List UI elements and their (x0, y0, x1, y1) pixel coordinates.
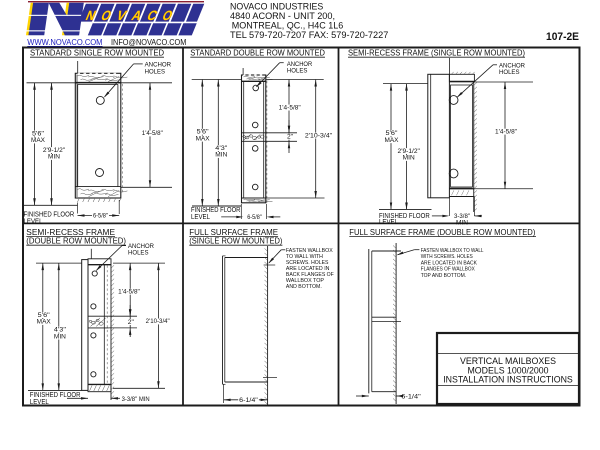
svg-text:MIN: MIN (48, 155, 60, 161)
svg-text:STANDARD DOUBLE ROW MOUNTED: STANDARD DOUBLE ROW MOUNTED (190, 49, 325, 58)
svg-text:TOP AND BOTTOM.: TOP AND BOTTOM. (421, 273, 467, 279)
svg-text:3-3/8": 3-3/8" (454, 214, 470, 220)
svg-text:HOLES: HOLES (287, 68, 308, 75)
svg-text:5'6": 5'6" (38, 313, 50, 319)
svg-text:INFO@NOVACO.COM: INFO@NOVACO.COM (111, 38, 186, 47)
svg-text:LEVEL: LEVEL (30, 399, 49, 406)
svg-text:LEVEL: LEVEL (24, 218, 43, 225)
svg-text:INSTALLATION INSTRUCTIONS: INSTALLATION INSTRUCTIONS (443, 374, 573, 385)
svg-text:1'4-5/8": 1'4-5/8" (279, 105, 301, 111)
svg-text:4'3": 4'3" (54, 327, 66, 333)
svg-text:5'6": 5'6" (32, 131, 44, 137)
svg-text:FASTEN WALLBOX TO WALL: FASTEN WALLBOX TO WALL (421, 248, 484, 254)
svg-text:107-2E: 107-2E (546, 31, 579, 43)
svg-text:FLANGES OF WALLBOX: FLANGES OF WALLBOX (421, 267, 475, 273)
svg-text:WITH SCREWS. HOLES: WITH SCREWS. HOLES (421, 254, 473, 260)
svg-text:WWW.NOVACO.COM: WWW.NOVACO.COM (27, 38, 102, 47)
svg-text:STANDARD SINGLE ROW MOUNTED: STANDARD SINGLE ROW MOUNTED (30, 49, 164, 58)
svg-text:5'6": 5'6" (197, 130, 209, 136)
svg-text:2'10-3/4": 2'10-3/4" (305, 133, 332, 139)
svg-text:LEVEL: LEVEL (379, 219, 398, 226)
svg-text:MAX: MAX (385, 138, 399, 144)
svg-text:ARE LOCATED IN BACK: ARE LOCATED IN BACK (421, 260, 477, 266)
svg-text:1'4-5/8": 1'4-5/8" (142, 131, 163, 137)
svg-text:MIN: MIN (403, 156, 415, 162)
svg-text:MAX: MAX (31, 138, 45, 144)
svg-text:AND BOTTOM.: AND BOTTOM. (286, 284, 322, 290)
svg-text:4'3": 4'3" (215, 146, 227, 152)
svg-text:LEVEL: LEVEL (191, 214, 210, 221)
svg-text:MIN: MIN (456, 221, 468, 227)
svg-text:FINISHED FLOOR: FINISHED FLOOR (191, 207, 240, 214)
svg-text:2'10-3/4": 2'10-3/4" (146, 319, 170, 325)
svg-text:(SINGLE ROW MOUNTED): (SINGLE ROW MOUNTED) (189, 237, 282, 246)
svg-text:3-3/8" MIN: 3-3/8" MIN (122, 397, 150, 403)
svg-text:MAX: MAX (37, 320, 51, 326)
svg-text:6-5/8": 6-5/8" (247, 215, 262, 221)
svg-text:(DOUBLE ROW MOUNTED): (DOUBLE ROW MOUNTED) (26, 237, 126, 246)
svg-text:6-1/4": 6-1/4" (239, 398, 258, 404)
svg-text:2'9-1/2": 2'9-1/2" (398, 149, 420, 155)
svg-text:TEL 579-720-7207 FAX: 579-720-: TEL 579-720-7207 FAX: 579-720-7227 (230, 30, 388, 41)
svg-text:6-5/8": 6-5/8" (93, 214, 108, 220)
svg-text:2": 2" (128, 320, 134, 326)
svg-text:6-1/4": 6-1/4" (401, 395, 420, 401)
svg-text:MIN: MIN (215, 153, 227, 159)
svg-text:2'9-1/2": 2'9-1/2" (43, 148, 65, 154)
svg-text:FINISHED FLOOR: FINISHED FLOOR (24, 211, 75, 218)
svg-text:2": 2" (287, 135, 293, 141)
svg-text:HOLES: HOLES (128, 250, 149, 257)
svg-text:1'4-5/8": 1'4-5/8" (495, 129, 517, 135)
svg-text:FULL SURFACE FRAME (DOUBLE RO: FULL SURFACE FRAME (DOUBLE ROW MOUNTED) (349, 228, 535, 237)
svg-text:MIN: MIN (54, 334, 66, 340)
svg-text:HOLES: HOLES (499, 69, 520, 76)
svg-text:5'6": 5'6" (386, 131, 398, 137)
svg-text:HOLES: HOLES (145, 68, 166, 75)
svg-text:SEMI-RECESS FRAME (SINGLE ROW: SEMI-RECESS FRAME (SINGLE ROW MOUNTED) (348, 49, 525, 58)
svg-text:MAX: MAX (196, 136, 210, 142)
svg-text:1'4-5/8": 1'4-5/8" (118, 290, 140, 296)
